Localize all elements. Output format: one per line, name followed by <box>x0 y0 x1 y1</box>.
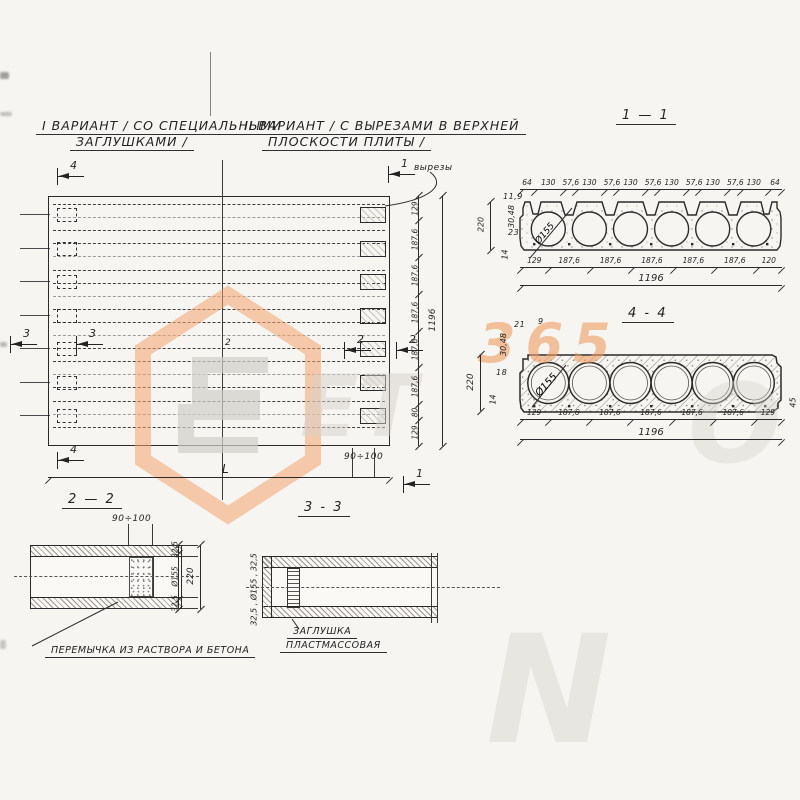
top-cutout <box>360 241 386 257</box>
dim-label: 187,6 <box>548 256 589 265</box>
dim-label: 57,6 <box>604 178 617 187</box>
sec44-bottom-dim-chain: 129187,6187,6187,6187,6187,6129 <box>520 407 782 420</box>
hatched-flange <box>263 557 438 568</box>
core-dash-line <box>53 387 385 388</box>
core-dash-line <box>53 348 385 349</box>
edge-stub-line <box>20 315 50 316</box>
dim-label: 187,6 <box>548 408 589 417</box>
dim-label: 120 <box>756 256 782 265</box>
top-cutout <box>360 274 386 290</box>
edge-stub-line <box>20 415 50 416</box>
core-dash-line <box>53 217 385 218</box>
dim-label: 130 <box>575 178 603 187</box>
dim-segment: 187,6 <box>673 255 714 267</box>
dim-segment: 64 <box>520 177 534 189</box>
plan-centerline <box>222 160 223 500</box>
dim-label: 187,6 <box>714 256 755 265</box>
top-cutout <box>360 375 386 391</box>
dim-label: 187,6 <box>630 408 671 417</box>
dim-label: 129 <box>754 408 782 417</box>
dim-label: 129 <box>411 411 420 455</box>
sec44-top-a: 21 <box>514 320 525 329</box>
core-dash-line <box>53 361 385 362</box>
sec11-d1: 11,9 <box>503 192 523 201</box>
sec11-bottom-dim-chain: 129187,6187,6187,6187,6187,6120 <box>520 255 782 268</box>
section-4-4-caption: 4 - 4 <box>622 306 674 321</box>
core-dash-line <box>53 414 385 415</box>
dim-segment: 120 <box>756 255 782 267</box>
paper-smudge <box>0 342 7 347</box>
dim-segment: 130 <box>616 177 644 189</box>
core-dash-line <box>53 243 385 244</box>
paper-smudge <box>0 112 12 116</box>
section-2-2-drawing <box>30 545 182 609</box>
core-dash-line <box>53 427 385 428</box>
dim-segment: 130 <box>698 177 726 189</box>
top-cutout <box>360 207 386 223</box>
paper-smudge <box>0 640 6 649</box>
core-centerline <box>246 587 500 588</box>
dim-segment: 187,6 <box>419 368 431 405</box>
special-plug <box>57 409 77 423</box>
dim-segment: 130 <box>575 177 603 189</box>
sec44-top-b: 9 <box>538 317 544 326</box>
dim-segment: 129 <box>754 407 782 419</box>
plug-edge-line <box>153 557 154 597</box>
blueprint-sheet: I ВАРИАНТ / СО СПЕЦИАЛЬНЫМИ ЗАГЛУШКАМИ /… <box>0 0 800 800</box>
dim-label: 187,6 <box>673 256 714 265</box>
dim-segment: 187,6 <box>419 258 431 295</box>
sec44-left-a: 30,48 <box>499 333 508 356</box>
core-dash-line <box>53 204 385 205</box>
mortar-plug <box>129 557 153 597</box>
plan-90-100-dim: 90÷100 <box>344 452 383 462</box>
dim-label: 129 <box>520 408 548 417</box>
sec44-left-b: 18 <box>496 368 507 377</box>
special-plug <box>57 342 77 356</box>
paper-smudge <box>0 72 9 79</box>
plastic-plug <box>287 568 300 608</box>
core-dash-line <box>53 322 385 323</box>
special-plug <box>57 275 77 289</box>
dim-segment: 187,6 <box>713 407 754 419</box>
dim-label: 64 <box>768 178 782 187</box>
dim-segment: 187,6 <box>630 407 671 419</box>
dim-label: 57,6 <box>686 178 699 187</box>
sec44-total-dim: 1196 <box>520 428 782 440</box>
plan-length-label: L <box>222 462 229 476</box>
plan-right-total-dim: 1196 <box>442 196 454 446</box>
dim-segment: 57,6 <box>645 177 658 189</box>
marker-2-center: 2 <box>225 338 231 348</box>
sec11-d2: 30,48 <box>507 205 516 228</box>
ext-line <box>128 524 129 545</box>
section-2-2-caption: 2 — 2 <box>62 492 122 507</box>
dim-segment: 129 <box>419 421 431 446</box>
dim-segment: 130 <box>740 177 768 189</box>
ext-line <box>152 524 153 545</box>
section-3-3-caption: 3 - 3 <box>298 500 350 515</box>
hatched-flange <box>31 597 181 608</box>
core-dash-line <box>53 283 385 284</box>
sec44-right-d: 45 <box>789 397 798 407</box>
dim-label: 57,6 <box>645 178 658 187</box>
plug-note-line1: ЗАГЛУШКА <box>287 626 357 637</box>
sec11-height-dim: 220 <box>490 202 502 250</box>
dim-segment: 187,6 <box>714 255 755 267</box>
hatched-flange <box>31 546 181 557</box>
special-plug <box>57 376 77 390</box>
edge-stub-line <box>20 281 50 282</box>
plan-bottom-dim-line <box>48 466 390 478</box>
core-dash-line <box>53 374 385 375</box>
plug-note-line2: ПЛАСТМАССОВАЯ <box>280 640 387 651</box>
dim-label: 57,6 <box>563 178 576 187</box>
dim-segment: 187,6 <box>419 221 431 258</box>
top-cutout <box>360 308 386 324</box>
dim-segment: 187,6 <box>590 255 631 267</box>
dim-segment: 32,5 <box>179 600 191 609</box>
core-dash-line <box>53 335 385 336</box>
dim-label: 130 <box>698 178 726 187</box>
edge-stub-line <box>20 348 50 349</box>
special-plug <box>57 208 77 222</box>
dim-segment: 57,6 <box>604 177 617 189</box>
dim-label: 130 <box>740 178 768 187</box>
top-cutout <box>360 408 386 424</box>
dim-label: 187,6 <box>713 408 754 417</box>
variant1-title-line2: ЗАГЛУШКАМИ / <box>70 134 194 149</box>
core-dash-line <box>53 270 385 271</box>
sec22-90-100-dim: 90÷100 <box>112 514 151 524</box>
sec11-top-dim-chain: 6413057,613057,613057,613057,613057,6130… <box>520 177 782 190</box>
core-dash-line <box>53 296 385 297</box>
dim-label: 187,6 <box>590 256 631 265</box>
dim-label: 187,6 <box>631 256 672 265</box>
sec33-side-dims: 32,5 , Ø155 , 32,5 <box>250 553 259 625</box>
dim-label: 187,6 <box>672 408 713 417</box>
break-line <box>431 553 432 623</box>
edge-stub-line <box>20 248 50 249</box>
dim-label: 129 <box>520 256 548 265</box>
dim-label: 130 <box>534 178 562 187</box>
dim-segment: 130 <box>534 177 562 189</box>
dim-segment: 187,6 <box>589 407 630 419</box>
edge-stub-line <box>20 214 50 215</box>
core-dash-line <box>53 309 385 310</box>
core-dash-line <box>53 401 385 402</box>
core-dash-line <box>53 256 385 257</box>
lintel-note: ПЕРЕМЫЧКА ИЗ РАСТВОРА И БЕТОНА <box>45 645 255 656</box>
dim-segment: 187,6 <box>548 255 589 267</box>
dim-segment: 187,6 <box>548 407 589 419</box>
fold-line <box>210 52 211 116</box>
watermark-n: N <box>486 604 612 778</box>
sec11-d4: 14 <box>501 249 510 259</box>
plan-view <box>48 196 390 446</box>
dim-segment: 129 <box>520 255 548 267</box>
break-line <box>437 553 438 623</box>
dim-label: 64 <box>520 178 534 187</box>
section-1-1-caption: 1 — 1 <box>616 108 676 123</box>
variant2-title-line1: II ВАРИАНТ / С ВЫРЕЗАМИ В ВЕРХНЕЙ <box>238 118 526 133</box>
special-plug <box>57 242 77 256</box>
dim-segment: 57,6 <box>686 177 699 189</box>
dim-label: 130 <box>657 178 685 187</box>
core-dash-line <box>53 230 385 231</box>
dim-label: 57,6 <box>727 178 740 187</box>
dim-label: 32,5 <box>171 582 180 626</box>
edge-stub-line <box>20 382 50 383</box>
sec44-left-c: 14 <box>489 394 498 404</box>
sec22-total-dim: 220 <box>200 545 212 609</box>
dim-segment: 130 <box>657 177 685 189</box>
dim-segment: 129 <box>520 407 548 419</box>
variant2-title-line2: ПЛОСКОСТИ ПЛИТЫ / <box>262 134 431 149</box>
dim-segment: 64 <box>768 177 782 189</box>
dim-segment: 57,6 <box>727 177 740 189</box>
sec11-d3: 23 <box>508 228 519 237</box>
dim-label: 130 <box>616 178 644 187</box>
cutouts-label: вырезы <box>414 163 453 173</box>
dim-segment: 187,6 <box>631 255 672 267</box>
special-plug <box>57 309 77 323</box>
dim-segment: 187,6 <box>672 407 713 419</box>
sec11-total-dim: 1196 <box>520 274 782 286</box>
dim-segment: 57,6 <box>563 177 576 189</box>
dim-label: 187,6 <box>589 408 630 417</box>
